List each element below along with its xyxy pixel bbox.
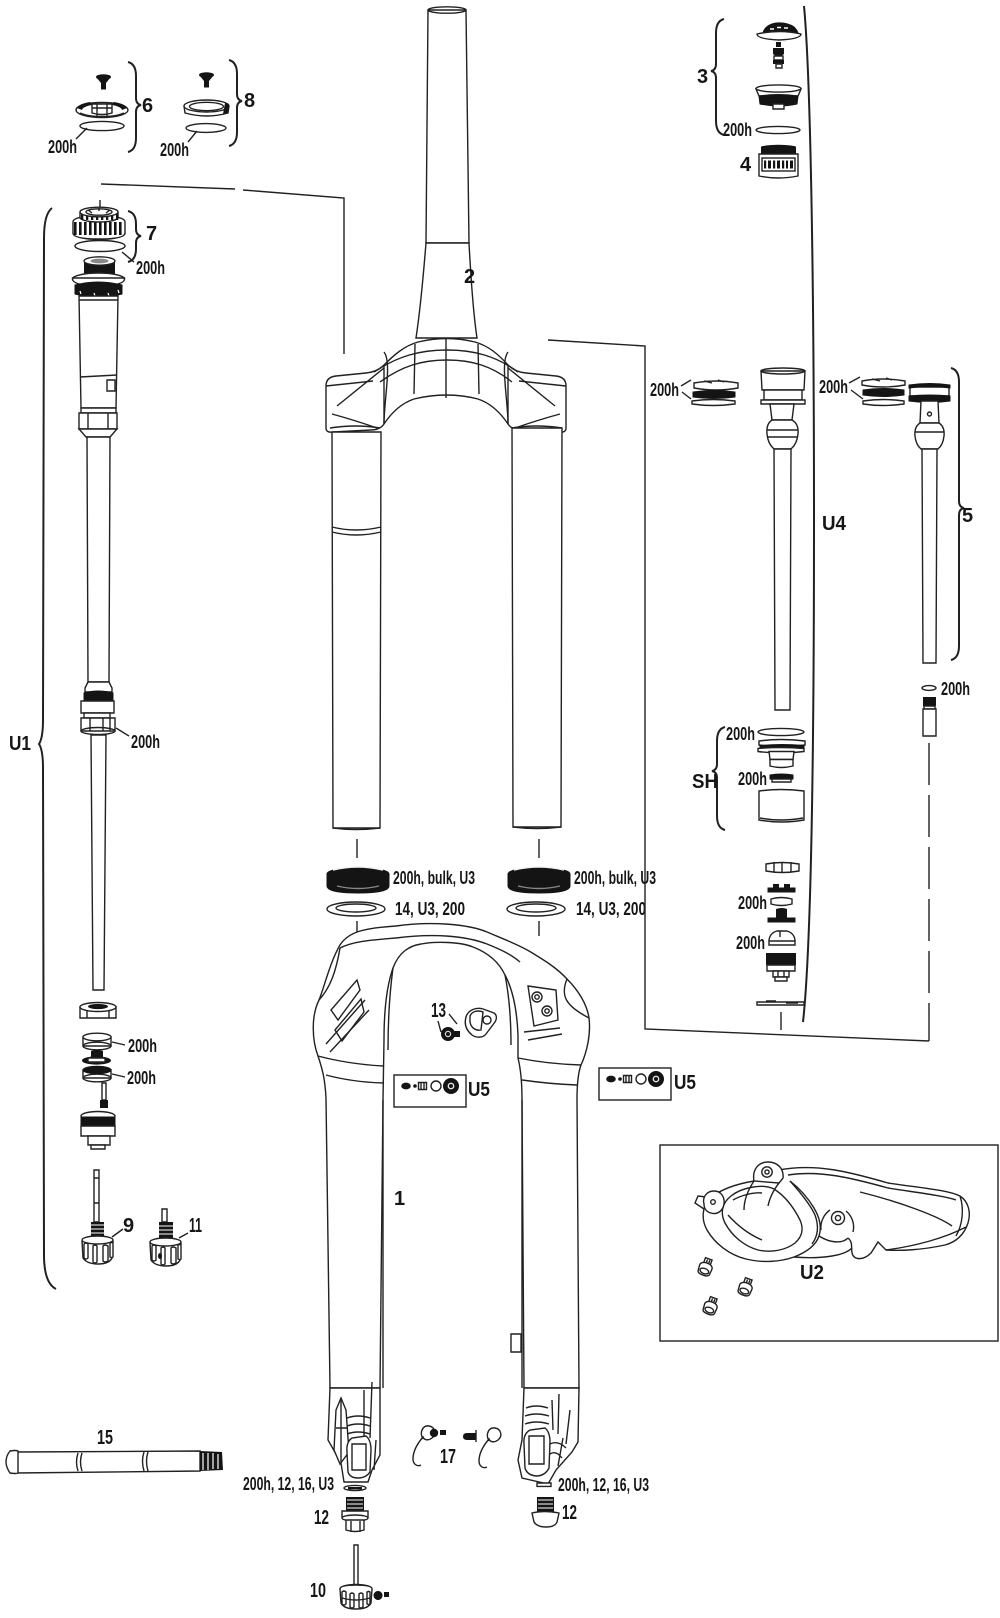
svg-text:200h: 200h — [131, 732, 160, 752]
svg-text:U4: U4 — [822, 513, 847, 535]
svg-text:4: 4 — [740, 154, 752, 176]
svg-text:200h: 200h — [128, 1036, 157, 1056]
svg-text:5: 5 — [962, 505, 973, 527]
svg-text:200h: 200h — [726, 724, 755, 744]
svg-text:9: 9 — [123, 1215, 134, 1237]
svg-text:13: 13 — [431, 1000, 446, 1022]
svg-text:U1: U1 — [9, 733, 31, 755]
svg-text:17: 17 — [440, 1446, 456, 1468]
svg-text:200h: 200h — [160, 140, 189, 160]
svg-text:1: 1 — [394, 1188, 405, 1210]
svg-text:7: 7 — [146, 223, 157, 245]
svg-text:200h: 200h — [941, 679, 970, 699]
svg-text:200h: 200h — [819, 377, 848, 397]
svg-text:2: 2 — [464, 266, 475, 288]
svg-text:200h, bulk, U3: 200h, bulk, U3 — [574, 868, 656, 888]
svg-text:200h, 12, 16, U3: 200h, 12, 16, U3 — [558, 1475, 649, 1495]
svg-text:3: 3 — [697, 66, 708, 88]
svg-text:SH: SH — [692, 771, 718, 793]
svg-text:11: 11 — [189, 1215, 202, 1237]
svg-text:15: 15 — [97, 1427, 113, 1449]
svg-text:200h, bulk, U3: 200h, bulk, U3 — [393, 868, 475, 888]
svg-text:U5: U5 — [674, 1072, 696, 1094]
svg-text:200h: 200h — [736, 933, 765, 953]
svg-text:200h, 12, 16, U3: 200h, 12, 16, U3 — [243, 1474, 334, 1494]
svg-text:U5: U5 — [468, 1079, 490, 1101]
svg-text:200h: 200h — [136, 258, 165, 278]
svg-text:12: 12 — [314, 1507, 329, 1529]
svg-text:U2: U2 — [800, 1262, 824, 1284]
svg-text:200h: 200h — [127, 1068, 156, 1088]
svg-text:200h: 200h — [723, 120, 752, 140]
svg-text:12: 12 — [562, 1502, 577, 1524]
svg-text:200h: 200h — [48, 137, 77, 157]
svg-text:14, U3, 200: 14, U3, 200 — [395, 899, 465, 919]
svg-text:8: 8 — [244, 90, 255, 112]
svg-text:6: 6 — [142, 95, 153, 117]
svg-text:200h: 200h — [738, 893, 767, 913]
svg-text:200h: 200h — [650, 380, 679, 400]
svg-text:14, U3, 200: 14, U3, 200 — [576, 899, 646, 919]
svg-text:10: 10 — [310, 1580, 326, 1602]
svg-text:200h: 200h — [738, 769, 767, 789]
